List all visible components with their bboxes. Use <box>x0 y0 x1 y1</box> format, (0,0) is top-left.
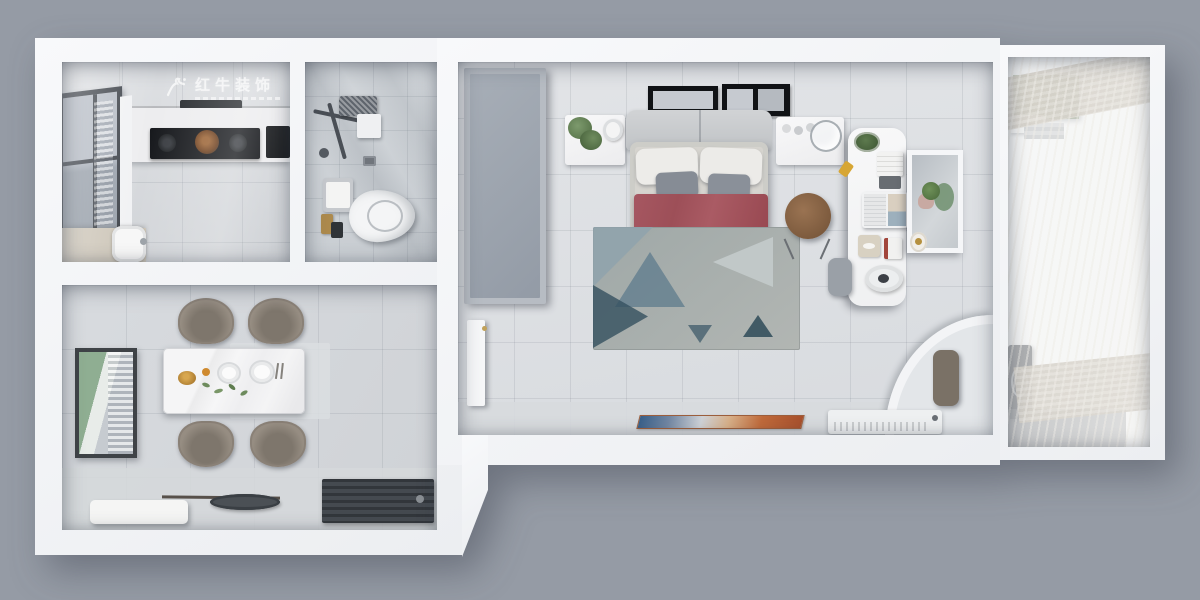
desk-plant <box>854 132 880 152</box>
watermark-text-block: 红牛装饰 <box>195 74 281 100</box>
apartment-floorplan: 红牛装饰 <box>0 0 1200 600</box>
hongniu-bull-logo-icon <box>163 75 189 99</box>
window-sill <box>120 95 132 236</box>
gold-tray-item <box>915 238 922 245</box>
wall-diagonal-corner <box>462 435 488 557</box>
rug-triangle-2 <box>615 252 685 307</box>
floor-drain <box>363 156 376 166</box>
gold-fruit-bowl <box>178 371 196 385</box>
copper-wok <box>195 130 219 154</box>
glass-globe-lamp <box>810 120 842 152</box>
desk-lamp <box>865 265 903 292</box>
plate-left <box>217 362 241 384</box>
shower-shelf <box>357 114 381 138</box>
picture-frame-right-art-1 <box>727 89 753 111</box>
desk-lamp-center <box>878 274 889 283</box>
bathroom <box>305 62 437 262</box>
desk-chair <box>828 258 852 296</box>
niche-stool <box>933 350 959 406</box>
watermark-subtext <box>195 97 281 100</box>
dining-room <box>62 285 437 530</box>
picture-frame-right-art-2 <box>758 89 784 111</box>
laptop-keyboard <box>864 194 886 226</box>
stool-leg-2 <box>820 239 831 260</box>
round-lamp <box>603 119 623 141</box>
appliance-dark <box>266 126 290 158</box>
laptop <box>862 192 908 228</box>
dining-chair-top-right <box>248 298 304 344</box>
book-stack <box>877 152 903 176</box>
shower-head <box>339 96 377 116</box>
vanity-plant-leaves <box>922 182 940 200</box>
dining-chair-top-left <box>178 298 234 344</box>
dining-chair-bottom-left <box>178 421 234 467</box>
balcony <box>1008 57 1150 447</box>
wall-art <box>75 348 137 458</box>
doormat-item <box>416 495 424 503</box>
toilet-brush <box>331 222 343 238</box>
wall-art-blinds <box>108 352 133 454</box>
floor-tray <box>210 494 280 510</box>
tissue-box <box>858 235 880 257</box>
small-books <box>884 238 902 259</box>
burner-right <box>229 134 247 152</box>
ac-grille <box>834 422 930 431</box>
geometric-area-rug <box>593 227 800 350</box>
bedroom <box>458 62 993 435</box>
plant-leaves-2 <box>580 130 602 150</box>
air-conditioner <box>828 410 942 434</box>
bench <box>90 500 188 524</box>
door-handle <box>482 326 487 331</box>
dining-chair-bottom-right <box>250 421 306 467</box>
watermark-text: 红牛装饰 <box>195 74 281 95</box>
shower-handle <box>319 148 329 158</box>
khaki-curtain-band-top <box>1008 57 1150 131</box>
rug-triangle-4 <box>713 237 773 287</box>
khaki-curtain-band-bottom <box>1014 351 1150 423</box>
ac-indicator <box>932 415 938 421</box>
perfume-bottles <box>782 124 791 133</box>
rug-triangle-6 <box>688 325 712 343</box>
wardrobe-panel <box>470 74 540 298</box>
watermark: 红牛装饰 <box>163 74 281 100</box>
entry-door <box>467 320 485 406</box>
towel <box>326 182 350 208</box>
toilet-seat-ring <box>367 200 403 232</box>
notebook <box>879 176 901 189</box>
window-blinds <box>94 101 112 226</box>
doormat <box>322 479 434 523</box>
plate-right <box>249 360 275 384</box>
laptop-screen <box>888 194 906 226</box>
picture-frame-left-art <box>653 91 713 109</box>
kitchen-window <box>62 86 122 244</box>
scene-background: 红牛装饰 <box>0 0 1200 600</box>
orange-fruit <box>202 368 210 376</box>
rug-triangle-5 <box>743 315 773 337</box>
faucet <box>140 238 147 245</box>
round-wood-stool <box>785 193 831 239</box>
wardrobe <box>464 68 546 304</box>
tissue-slot <box>863 243 875 249</box>
colorful-entry-mat <box>636 415 804 429</box>
burner-left <box>158 134 176 152</box>
gold-tray <box>910 232 927 252</box>
